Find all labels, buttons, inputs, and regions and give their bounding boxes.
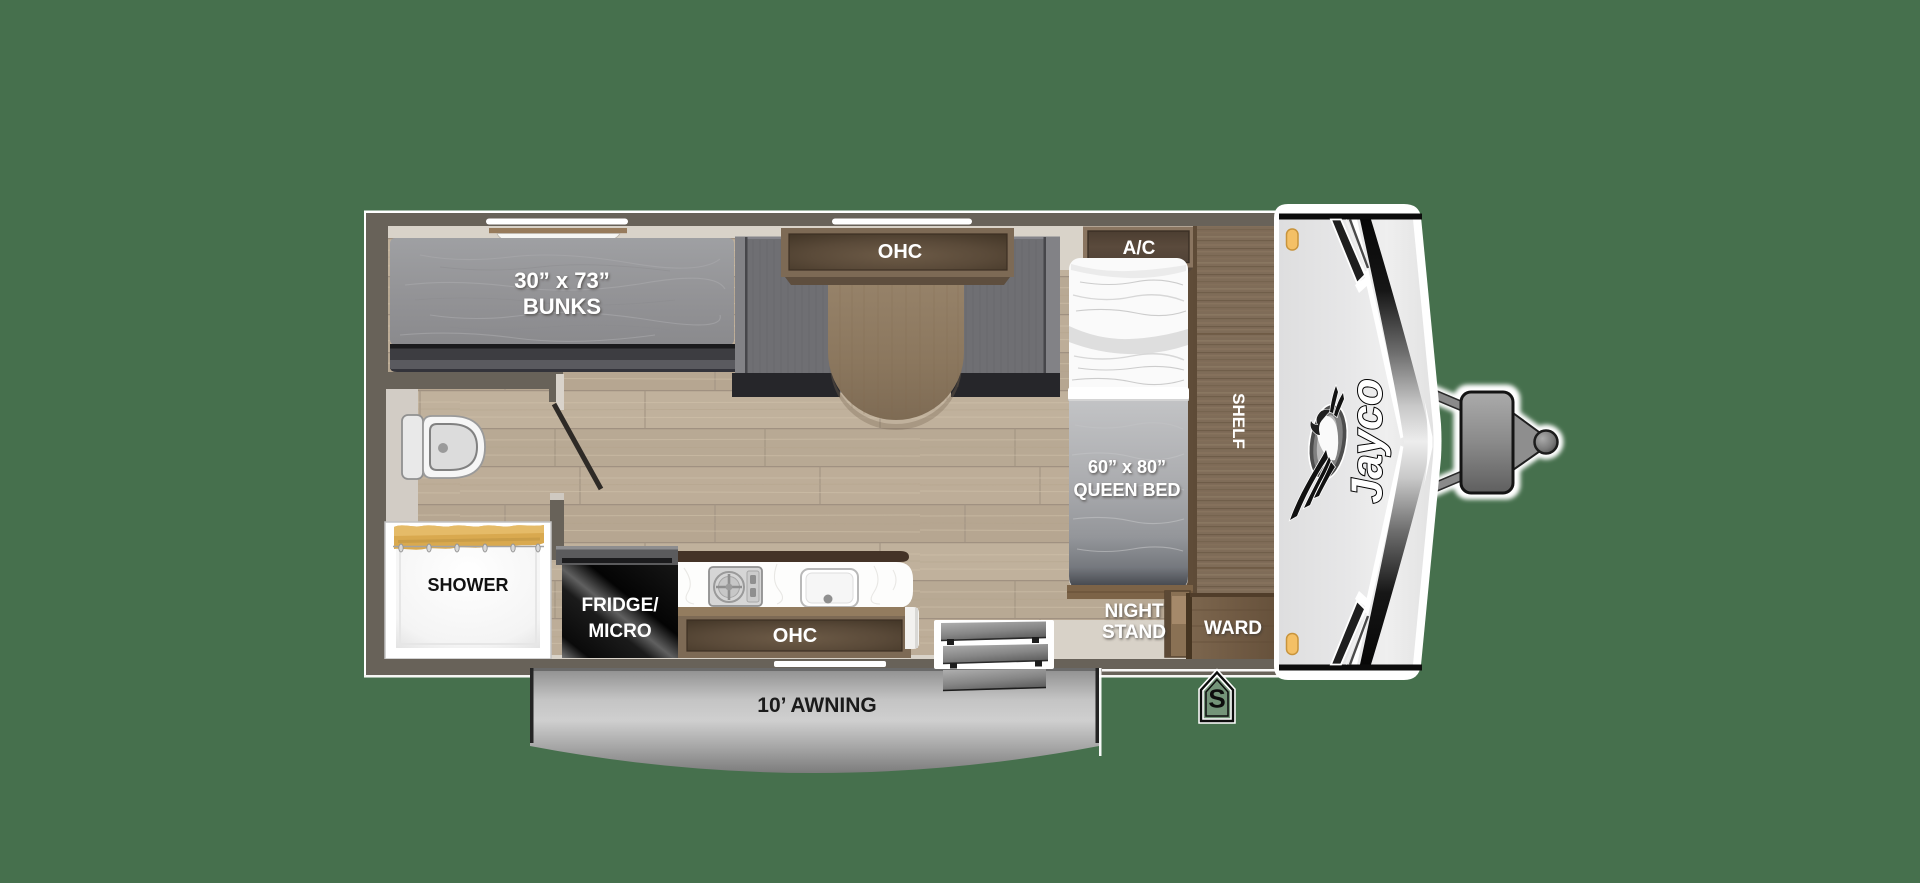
svg-text:10’ AWNING: 10’ AWNING bbox=[757, 694, 876, 717]
svg-text:Jayco: Jayco bbox=[1343, 379, 1392, 504]
svg-text:OHC: OHC bbox=[878, 241, 922, 263]
svg-text:BUNKS: BUNKS bbox=[523, 294, 601, 319]
svg-text:WARD: WARD bbox=[1204, 618, 1262, 639]
svg-text:NIGHT: NIGHT bbox=[1104, 601, 1164, 622]
svg-text:QUEEN BED: QUEEN BED bbox=[1073, 480, 1180, 500]
svg-text:A/C: A/C bbox=[1123, 238, 1156, 259]
svg-text:SHOWER: SHOWER bbox=[428, 575, 509, 595]
svg-text:SHELF: SHELF bbox=[1229, 393, 1248, 449]
svg-text:MICRO: MICRO bbox=[588, 621, 651, 642]
svg-text:30” x 73”: 30” x 73” bbox=[514, 268, 609, 293]
svg-text:FRIDGE/: FRIDGE/ bbox=[581, 595, 659, 616]
svg-text:60” x 80”: 60” x 80” bbox=[1088, 457, 1166, 477]
svg-text:S: S bbox=[1208, 684, 1225, 714]
svg-text:STAND: STAND bbox=[1102, 622, 1166, 643]
svg-text:OHC: OHC bbox=[773, 625, 817, 647]
